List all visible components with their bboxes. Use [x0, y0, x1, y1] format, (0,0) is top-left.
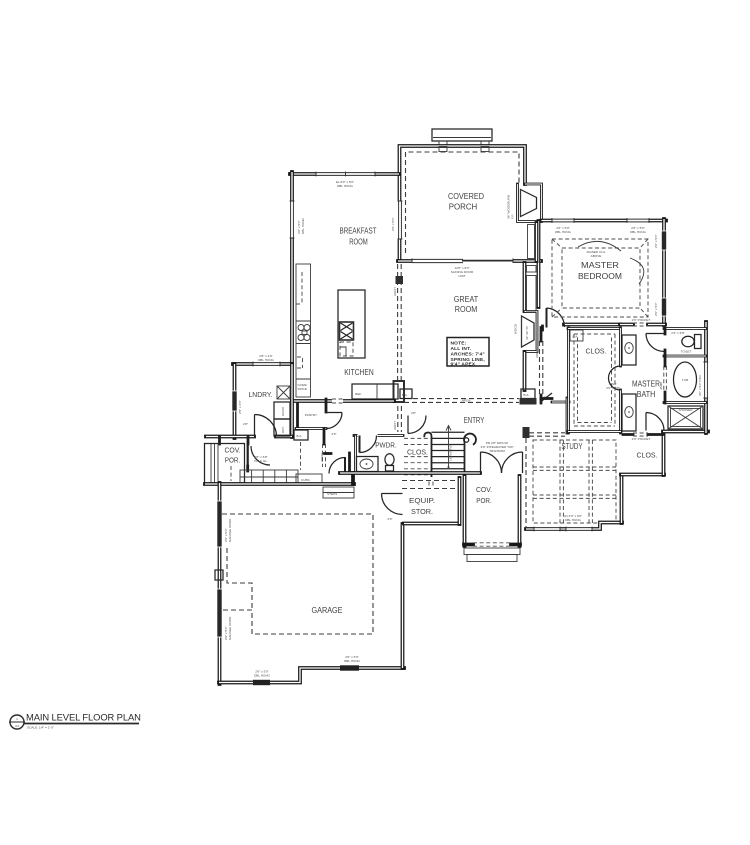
- svg-text:LNDRY.: LNDRY.: [249, 390, 273, 399]
- svg-text:2'6" x 5'0": 2'6" x 5'0": [654, 302, 658, 316]
- svg-text:ROOM: ROOM: [455, 304, 478, 314]
- svg-text:PWDR.: PWDR.: [375, 441, 397, 450]
- svg-text:COV.: COV.: [225, 446, 241, 455]
- svg-text:PORCH: PORCH: [449, 202, 478, 212]
- svg-text:EQUIP.: EQUIP.: [409, 496, 435, 505]
- svg-text:BREAKFAST: BREAKFAST: [340, 226, 377, 236]
- svg-text:2'8": 2'8": [387, 517, 392, 521]
- svg-text:POR.: POR.: [476, 496, 492, 505]
- svg-text:REF.: REF.: [355, 392, 362, 396]
- svg-text:2'8": 2'8": [411, 411, 416, 415]
- svg-text:DBL HUNG: DBL HUNG: [630, 230, 646, 234]
- svg-text:42" AP TV: 42" AP TV: [525, 325, 529, 340]
- svg-text:SHOWER: SHOWER: [679, 408, 694, 412]
- svg-text:SCALE: 1/4" = 1'-0": SCALE: 1/4" = 1'-0": [27, 726, 54, 730]
- svg-text:3'0" x 5'0" FXD: 3'0" x 5'0" FXD: [698, 375, 702, 396]
- svg-text:TOILET: TOILET: [681, 350, 692, 354]
- svg-text:NOTE:: NOTE:: [451, 341, 467, 347]
- svg-text:9'4" APEX: 9'4" APEX: [451, 362, 476, 368]
- svg-text:MASTER: MASTER: [581, 260, 619, 270]
- svg-text:1: 1: [16, 717, 18, 721]
- svg-text:2'6" POCKET: 2'6" POCKET: [632, 318, 651, 322]
- svg-text:DBL HUNG: DBL HUNG: [258, 358, 274, 362]
- svg-text:B.A.: B.A.: [573, 335, 579, 339]
- svg-text:STOR.: STOR.: [411, 507, 433, 516]
- svg-text:2'6" x 5'0": 2'6" x 5'0": [391, 217, 395, 231]
- svg-text:2'4" x 6'8": 2'4" x 6'8": [671, 331, 685, 335]
- svg-text:STUDY: STUDY: [562, 441, 583, 451]
- svg-text:HALF GL.: HALF GL.: [254, 459, 268, 463]
- svg-text:GARAGE DOOR: GARAGE DOOR: [228, 518, 232, 542]
- svg-text:STEPS: STEPS: [327, 492, 337, 496]
- svg-text:KITCHEN: KITCHEN: [344, 367, 374, 377]
- svg-text:PANTRY: PANTRY: [305, 413, 317, 417]
- svg-text:CLOS.: CLOS.: [586, 347, 607, 356]
- svg-text:A3: A3: [15, 724, 19, 728]
- svg-text:MAIN LEVEL FLOOR PLAN: MAIN LEVEL FLOOR PLAN: [26, 712, 141, 723]
- svg-text:ARCHES: 7'4": ARCHES: 7'4": [451, 352, 485, 358]
- svg-text:CLOS.: CLOS.: [407, 448, 428, 457]
- svg-text:DBL HUNG: DBL HUNG: [337, 184, 353, 188]
- svg-text:16 RISERS: 16 RISERS: [449, 445, 453, 461]
- svg-text:ROOM: ROOM: [349, 237, 368, 247]
- svg-text:DBL HUNG: DBL HUNG: [254, 674, 270, 678]
- svg-text:CUBS: CUBS: [301, 478, 310, 482]
- svg-text:2'6" POCKET: 2'6" POCKET: [632, 437, 651, 441]
- svg-text:2'6" x 5'0": 2'6" x 5'0": [654, 234, 658, 248]
- svg-text:2'0" x 6'8": 2'0" x 6'8": [606, 386, 620, 390]
- svg-text:UNIT: UNIT: [458, 274, 465, 278]
- svg-text:ENTRY: ENTRY: [464, 415, 485, 425]
- svg-text:DBL HUNG: DBL HUNG: [301, 218, 305, 234]
- svg-text:TUB: TUB: [682, 378, 688, 382]
- svg-text:CLOS.: CLOS.: [637, 451, 658, 460]
- svg-text:F.P.: F.P.: [511, 214, 515, 219]
- svg-text:BEDROOM: BEDROOM: [578, 271, 622, 281]
- svg-text:DRY: DRY: [281, 427, 285, 433]
- svg-text:DBL HUNG: DBL HUNG: [565, 518, 581, 522]
- svg-text:DBL HUNG: DBL HUNG: [344, 659, 360, 663]
- svg-text:2'8" x 4'0": 2'8" x 4'0": [238, 400, 242, 414]
- svg-text:COV.: COV.: [476, 485, 492, 494]
- svg-text:COVERED: COVERED: [448, 191, 484, 201]
- svg-text:ARCH: ARCH: [462, 399, 471, 403]
- svg-text:ARCH: ARCH: [535, 349, 539, 358]
- svg-text:ARCH: ARCH: [393, 287, 397, 296]
- svg-text:B.A.: B.A.: [402, 393, 408, 397]
- svg-text:2'8": 2'8": [331, 432, 336, 436]
- svg-text:SPICE: SPICE: [298, 387, 307, 391]
- svg-text:B.A.: B.A.: [297, 434, 303, 438]
- svg-text:DBL HUNG: DBL HUNG: [555, 230, 571, 234]
- svg-text:ABOVE: ABOVE: [591, 254, 602, 258]
- svg-text:GREAT: GREAT: [454, 294, 479, 304]
- svg-text:B.A.: B.A.: [524, 393, 530, 397]
- svg-text:2'8": 2'8": [243, 422, 248, 426]
- svg-text:ALL INT.: ALL INT.: [451, 346, 472, 352]
- svg-text:GARAGE DOOR: GARAGE DOOR: [228, 616, 232, 640]
- svg-text:TRANSOM: TRANSOM: [489, 449, 505, 453]
- svg-text:GARAGE: GARAGE: [312, 605, 343, 615]
- svg-text:WASH: WASH: [281, 407, 285, 416]
- svg-text:BATH: BATH: [637, 389, 656, 399]
- svg-text:MASTER: MASTER: [632, 379, 660, 389]
- svg-text:WOOD: WOOD: [514, 323, 518, 334]
- svg-text:POR.: POR.: [225, 456, 241, 465]
- svg-text:ARCH: ARCH: [393, 421, 397, 430]
